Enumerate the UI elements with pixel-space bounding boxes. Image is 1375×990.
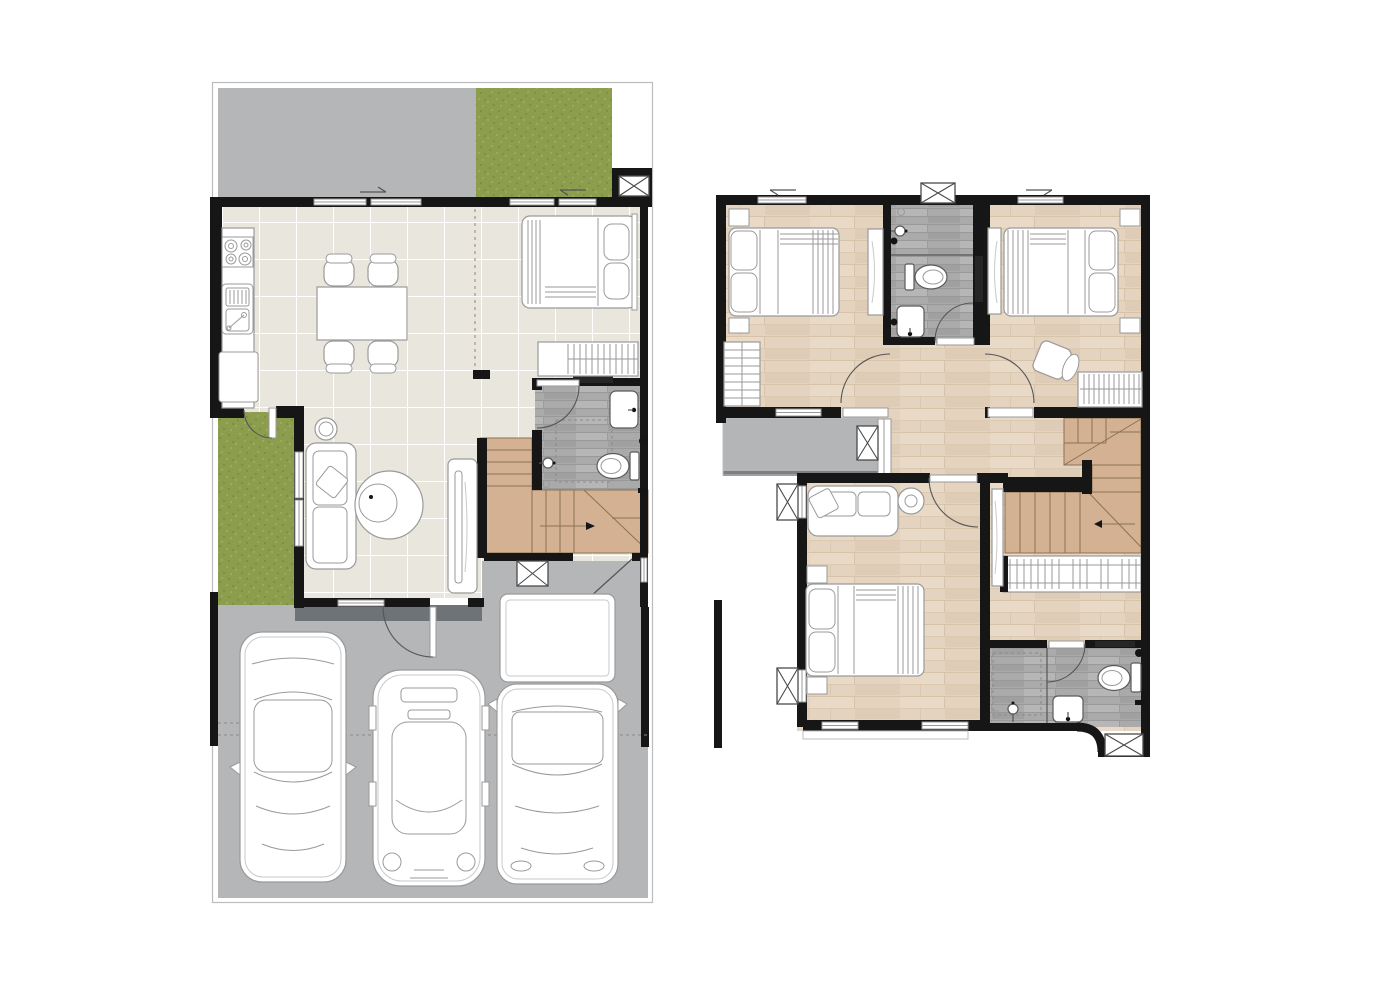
vehicle-hatchback bbox=[369, 670, 489, 886]
balcony bbox=[723, 418, 891, 476]
closet-rail bbox=[1078, 372, 1142, 407]
nightstand bbox=[807, 566, 827, 583]
pillow bbox=[1089, 231, 1115, 270]
valve bbox=[891, 319, 898, 326]
pillow bbox=[604, 224, 629, 260]
pillow bbox=[809, 589, 835, 629]
shelf-unit bbox=[724, 342, 760, 406]
nightstand bbox=[1120, 318, 1140, 333]
round-table bbox=[898, 488, 924, 514]
round-rug bbox=[355, 471, 423, 539]
roof-vent-icon bbox=[921, 183, 955, 203]
front-lawn bbox=[476, 88, 612, 198]
driveway bbox=[218, 88, 476, 198]
mirror-panel bbox=[868, 229, 883, 315]
ac-unit-icon bbox=[857, 426, 878, 460]
second-floor-plan bbox=[710, 183, 1150, 757]
headboard bbox=[632, 214, 637, 310]
window bbox=[798, 670, 806, 702]
dining-chair bbox=[368, 341, 398, 373]
pillow bbox=[809, 632, 835, 672]
vehicle-pickup-truck bbox=[488, 594, 627, 884]
double-bed bbox=[522, 214, 637, 310]
porch-vent-icon bbox=[517, 561, 548, 586]
window bbox=[1018, 197, 1063, 203]
wheel bbox=[369, 706, 376, 730]
round-rug-and-table bbox=[355, 471, 423, 539]
nightstand bbox=[807, 677, 827, 694]
mirror-strip bbox=[975, 256, 983, 302]
sink-unit bbox=[222, 284, 253, 334]
valve bbox=[1135, 649, 1143, 657]
floor-plan-canvas bbox=[0, 0, 1375, 990]
window bbox=[822, 722, 858, 729]
pillow bbox=[731, 273, 757, 312]
wash-basin-icon bbox=[897, 306, 924, 337]
window bbox=[314, 199, 366, 205]
double-bed bbox=[1004, 228, 1118, 316]
wardrobe bbox=[538, 342, 638, 376]
floor-plan-sheet bbox=[0, 0, 1375, 990]
window bbox=[295, 500, 303, 546]
wheel bbox=[482, 782, 489, 806]
ac-unit-icon bbox=[777, 484, 798, 520]
nightstand bbox=[1120, 209, 1140, 226]
window bbox=[338, 600, 384, 606]
stove-icon bbox=[222, 237, 253, 267]
kitchen bbox=[219, 228, 258, 408]
nightstand bbox=[729, 318, 749, 333]
tv-console bbox=[448, 459, 477, 593]
window bbox=[922, 722, 968, 729]
ac-unit-icon bbox=[777, 668, 798, 704]
window bbox=[559, 199, 596, 205]
column-box-icon bbox=[619, 176, 649, 196]
window bbox=[641, 558, 647, 582]
toilet-icon bbox=[905, 264, 947, 290]
window bbox=[371, 199, 421, 205]
truck-bed bbox=[500, 594, 615, 682]
dining-chair bbox=[324, 341, 354, 373]
stop-valve bbox=[1135, 700, 1145, 705]
toilet-icon bbox=[1098, 663, 1141, 692]
swing-tick bbox=[1026, 190, 1052, 195]
wheel bbox=[482, 706, 489, 730]
pillow bbox=[731, 231, 757, 270]
window bbox=[510, 199, 554, 205]
master-double-bed bbox=[806, 584, 924, 676]
ac-unit-icon bbox=[1105, 734, 1143, 756]
toilet-icon bbox=[597, 452, 639, 480]
window bbox=[295, 452, 303, 498]
side-garden bbox=[218, 412, 294, 608]
wash-basin-icon bbox=[610, 391, 638, 428]
stop-valve bbox=[638, 488, 648, 493]
dining-chair bbox=[324, 254, 354, 286]
mirror-panel bbox=[988, 228, 1001, 314]
window bbox=[758, 197, 806, 203]
dining-table bbox=[317, 287, 407, 340]
double-bed bbox=[729, 228, 839, 316]
wash-basin-icon bbox=[1053, 696, 1083, 722]
window bbox=[776, 409, 821, 416]
nightstand bbox=[729, 209, 749, 226]
stair-railing bbox=[1003, 556, 1141, 592]
lower-cabinet bbox=[219, 352, 258, 402]
sofa bbox=[306, 443, 356, 569]
pillow bbox=[1089, 273, 1115, 312]
bedroom-ground bbox=[522, 214, 638, 376]
swing-tick bbox=[770, 190, 796, 195]
side-stool-icon bbox=[315, 418, 337, 440]
balcony-door bbox=[878, 419, 891, 474]
vehicle-sedan bbox=[230, 632, 356, 882]
eave-outline bbox=[803, 731, 968, 739]
valve bbox=[639, 437, 647, 445]
ground-floor-plan bbox=[210, 83, 653, 903]
valve bbox=[891, 238, 898, 245]
sofa bbox=[808, 486, 898, 536]
dining-chair bbox=[368, 254, 398, 286]
boundary-wall bbox=[714, 600, 722, 748]
window bbox=[798, 486, 806, 518]
entry-porch-step bbox=[295, 605, 482, 621]
mirror-panel bbox=[992, 489, 1003, 586]
wheel bbox=[369, 782, 376, 806]
pillow bbox=[604, 263, 629, 299]
